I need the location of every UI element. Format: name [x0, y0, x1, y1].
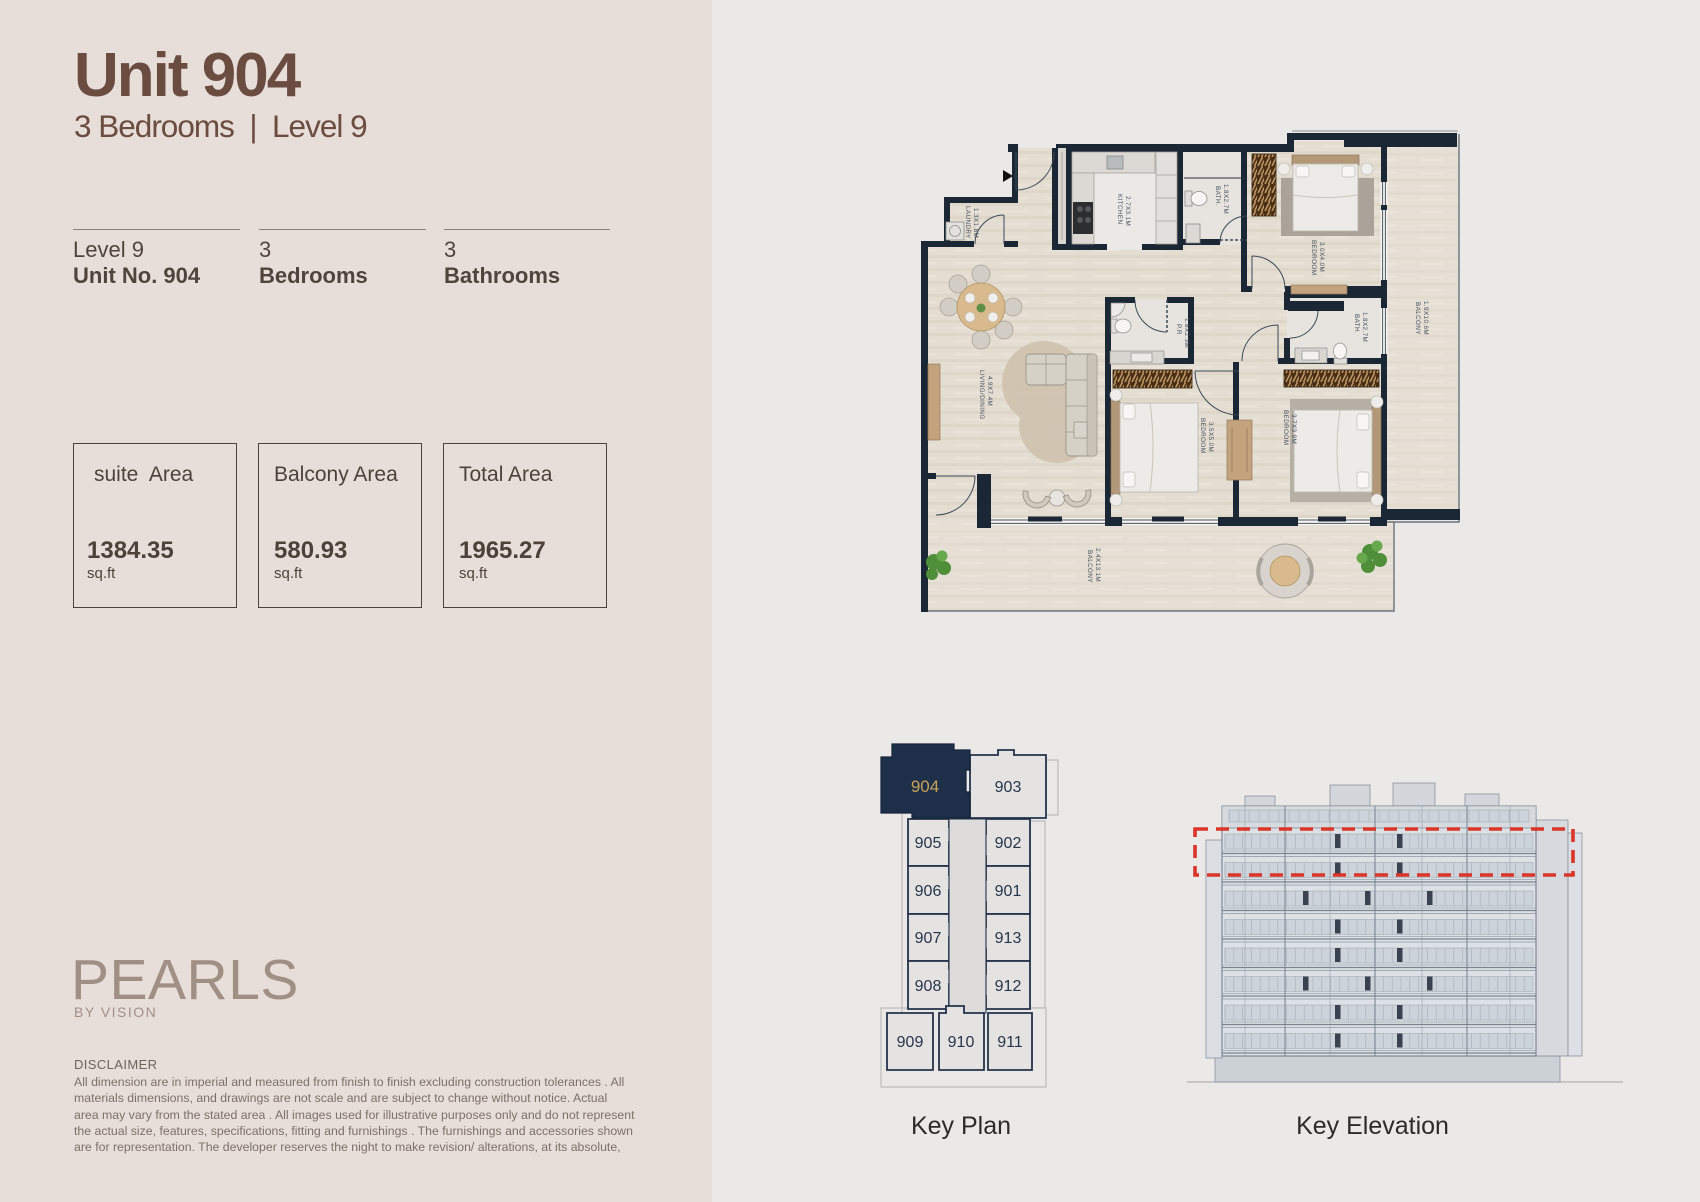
svg-text:902: 902 — [995, 835, 1022, 852]
svg-text:913: 913 — [995, 930, 1022, 947]
svg-text:1.8X2.3M: 1.8X2.3M — [1183, 318, 1190, 348]
svg-text:BEDROOM: BEDROOM — [1199, 418, 1206, 453]
svg-text:BALCONY: BALCONY — [1414, 302, 1421, 335]
svg-text:BEDROOM: BEDROOM — [1282, 410, 1289, 445]
svg-text:2.4X13.1M: 2.4X13.1M — [1094, 548, 1101, 582]
svg-text:3.5X5.0M: 3.5X5.0M — [1207, 422, 1214, 452]
svg-text:BATH.: BATH. — [1353, 314, 1360, 334]
svg-text:904: 904 — [911, 777, 939, 796]
svg-text:908: 908 — [915, 978, 942, 995]
svg-text:BEDROOM: BEDROOM — [1310, 240, 1317, 275]
svg-text:901: 901 — [995, 883, 1022, 900]
svg-text:BATH.: BATH. — [1214, 186, 1221, 206]
svg-text:1.3X1.8M: 1.3X1.8M — [972, 208, 979, 238]
svg-text:1.8X2.7M: 1.8X2.7M — [1361, 312, 1368, 342]
svg-text:4.9X7.4M: 4.9X7.4M — [986, 376, 993, 406]
svg-text:1.9X10.6M: 1.9X10.6M — [1422, 301, 1429, 335]
svg-text:LAUNDRY: LAUNDRY — [964, 206, 971, 239]
svg-text:KITCHEN: KITCHEN — [1116, 194, 1123, 224]
svg-text:1.8X2.7M: 1.8X2.7M — [1222, 184, 1229, 214]
svg-text:LIVING/DINING: LIVING/DINING — [978, 370, 985, 420]
svg-text:906: 906 — [915, 883, 942, 900]
svg-text:3.0X4.0M: 3.0X4.0M — [1318, 242, 1325, 272]
svg-text:BALCONY: BALCONY — [1086, 550, 1093, 583]
svg-text:912: 912 — [995, 978, 1022, 995]
svg-text:907: 907 — [915, 930, 942, 947]
svg-text:2.7X3.1M: 2.7X3.1M — [1124, 196, 1131, 226]
svg-text:903: 903 — [995, 779, 1022, 796]
svg-text:P.R: P.R — [1175, 324, 1182, 335]
svg-text:911: 911 — [997, 1034, 1023, 1051]
svg-text:905: 905 — [915, 835, 942, 852]
svg-text:909: 909 — [897, 1034, 924, 1051]
svg-text:3.7X3.9M: 3.7X3.9M — [1290, 414, 1297, 444]
svg-text:910: 910 — [948, 1034, 975, 1051]
